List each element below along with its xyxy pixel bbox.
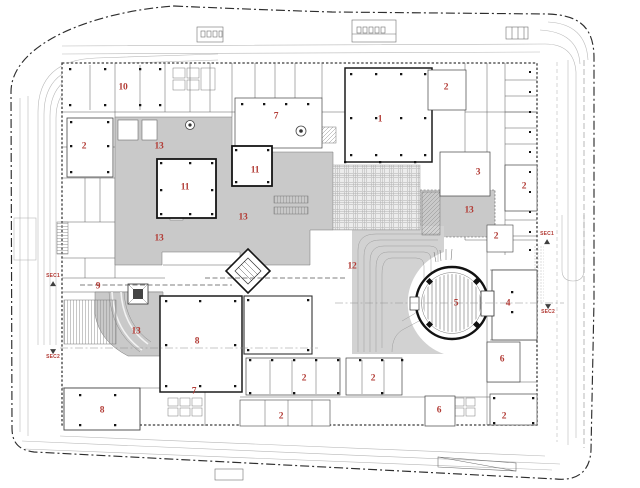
room-3 bbox=[440, 152, 490, 196]
room-2-band3 bbox=[240, 400, 330, 426]
room-6-bottom bbox=[425, 396, 455, 426]
hall-center bbox=[244, 296, 312, 354]
room-8-hall bbox=[160, 296, 242, 392]
room-2-topright bbox=[428, 70, 466, 110]
room-2-right bbox=[505, 165, 537, 211]
room-1-hall bbox=[345, 68, 432, 162]
room-8-bottomleft bbox=[64, 388, 140, 430]
room-11-main bbox=[157, 159, 216, 218]
room-7-hall bbox=[235, 98, 322, 148]
room-2-band1 bbox=[246, 358, 340, 395]
room-4 bbox=[492, 270, 537, 340]
room-11-annex bbox=[232, 146, 272, 186]
floor-plan-canvas: 1027121311113213132131295413862287622 SE… bbox=[0, 0, 640, 488]
room-2-topleft bbox=[67, 118, 113, 177]
room-2-bottomright bbox=[490, 394, 537, 425]
room-2-band2 bbox=[346, 358, 402, 395]
floor-plan-drawing bbox=[0, 0, 640, 488]
elevator-core bbox=[128, 284, 148, 304]
room-2-right-small bbox=[487, 225, 513, 252]
room-6-right bbox=[487, 342, 520, 382]
